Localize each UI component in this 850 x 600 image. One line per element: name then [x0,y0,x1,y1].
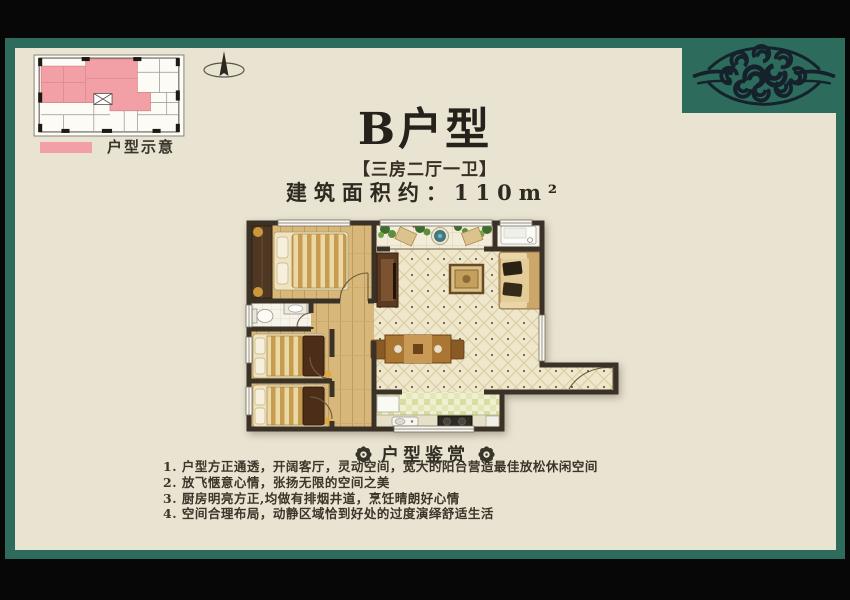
sofa [499,252,541,309]
poster-canvas: 户型示意 B户型 【三房二厅一卫】 建筑面积约：110m² [0,0,850,600]
appreciation-list: 1. 户型方正通透，开阔客厅，灵动空间，宽大的阳台营造最佳放松休闲空间 2. 放… [163,459,783,522]
corner-ornament-block [682,38,845,113]
appreciation-item: 3. 厨房明亮方正,均做有排烟井道，烹饪晴朗好心情 [163,491,783,507]
north-compass-icon [196,47,252,83]
bedroom3-bed-group [253,385,332,427]
cloud-medallion-icon [689,41,839,111]
coffee-table-rug [450,265,483,293]
appreciation-item: 1. 户型方正通透，开阔客厅，灵动空间，宽大的阳台营造最佳放松休闲空间 [163,459,783,475]
tv-cabinet [377,253,398,307]
bedroom2-bed-group [253,334,332,378]
appreciation-item: 4. 空间合理布局，动静区域恰到好处的过度演绎舒适生活 [163,506,783,522]
floorplan-image [244,219,622,433]
page-title: B户型 [0,106,850,154]
area-text: 建筑面积约：110m² [0,177,850,207]
washer [501,226,536,244]
master-bed-group [252,226,348,298]
dining-set [371,335,464,363]
appreciation-item: 2. 放飞惬意心情，张扬无限的空间之美 [163,475,783,491]
